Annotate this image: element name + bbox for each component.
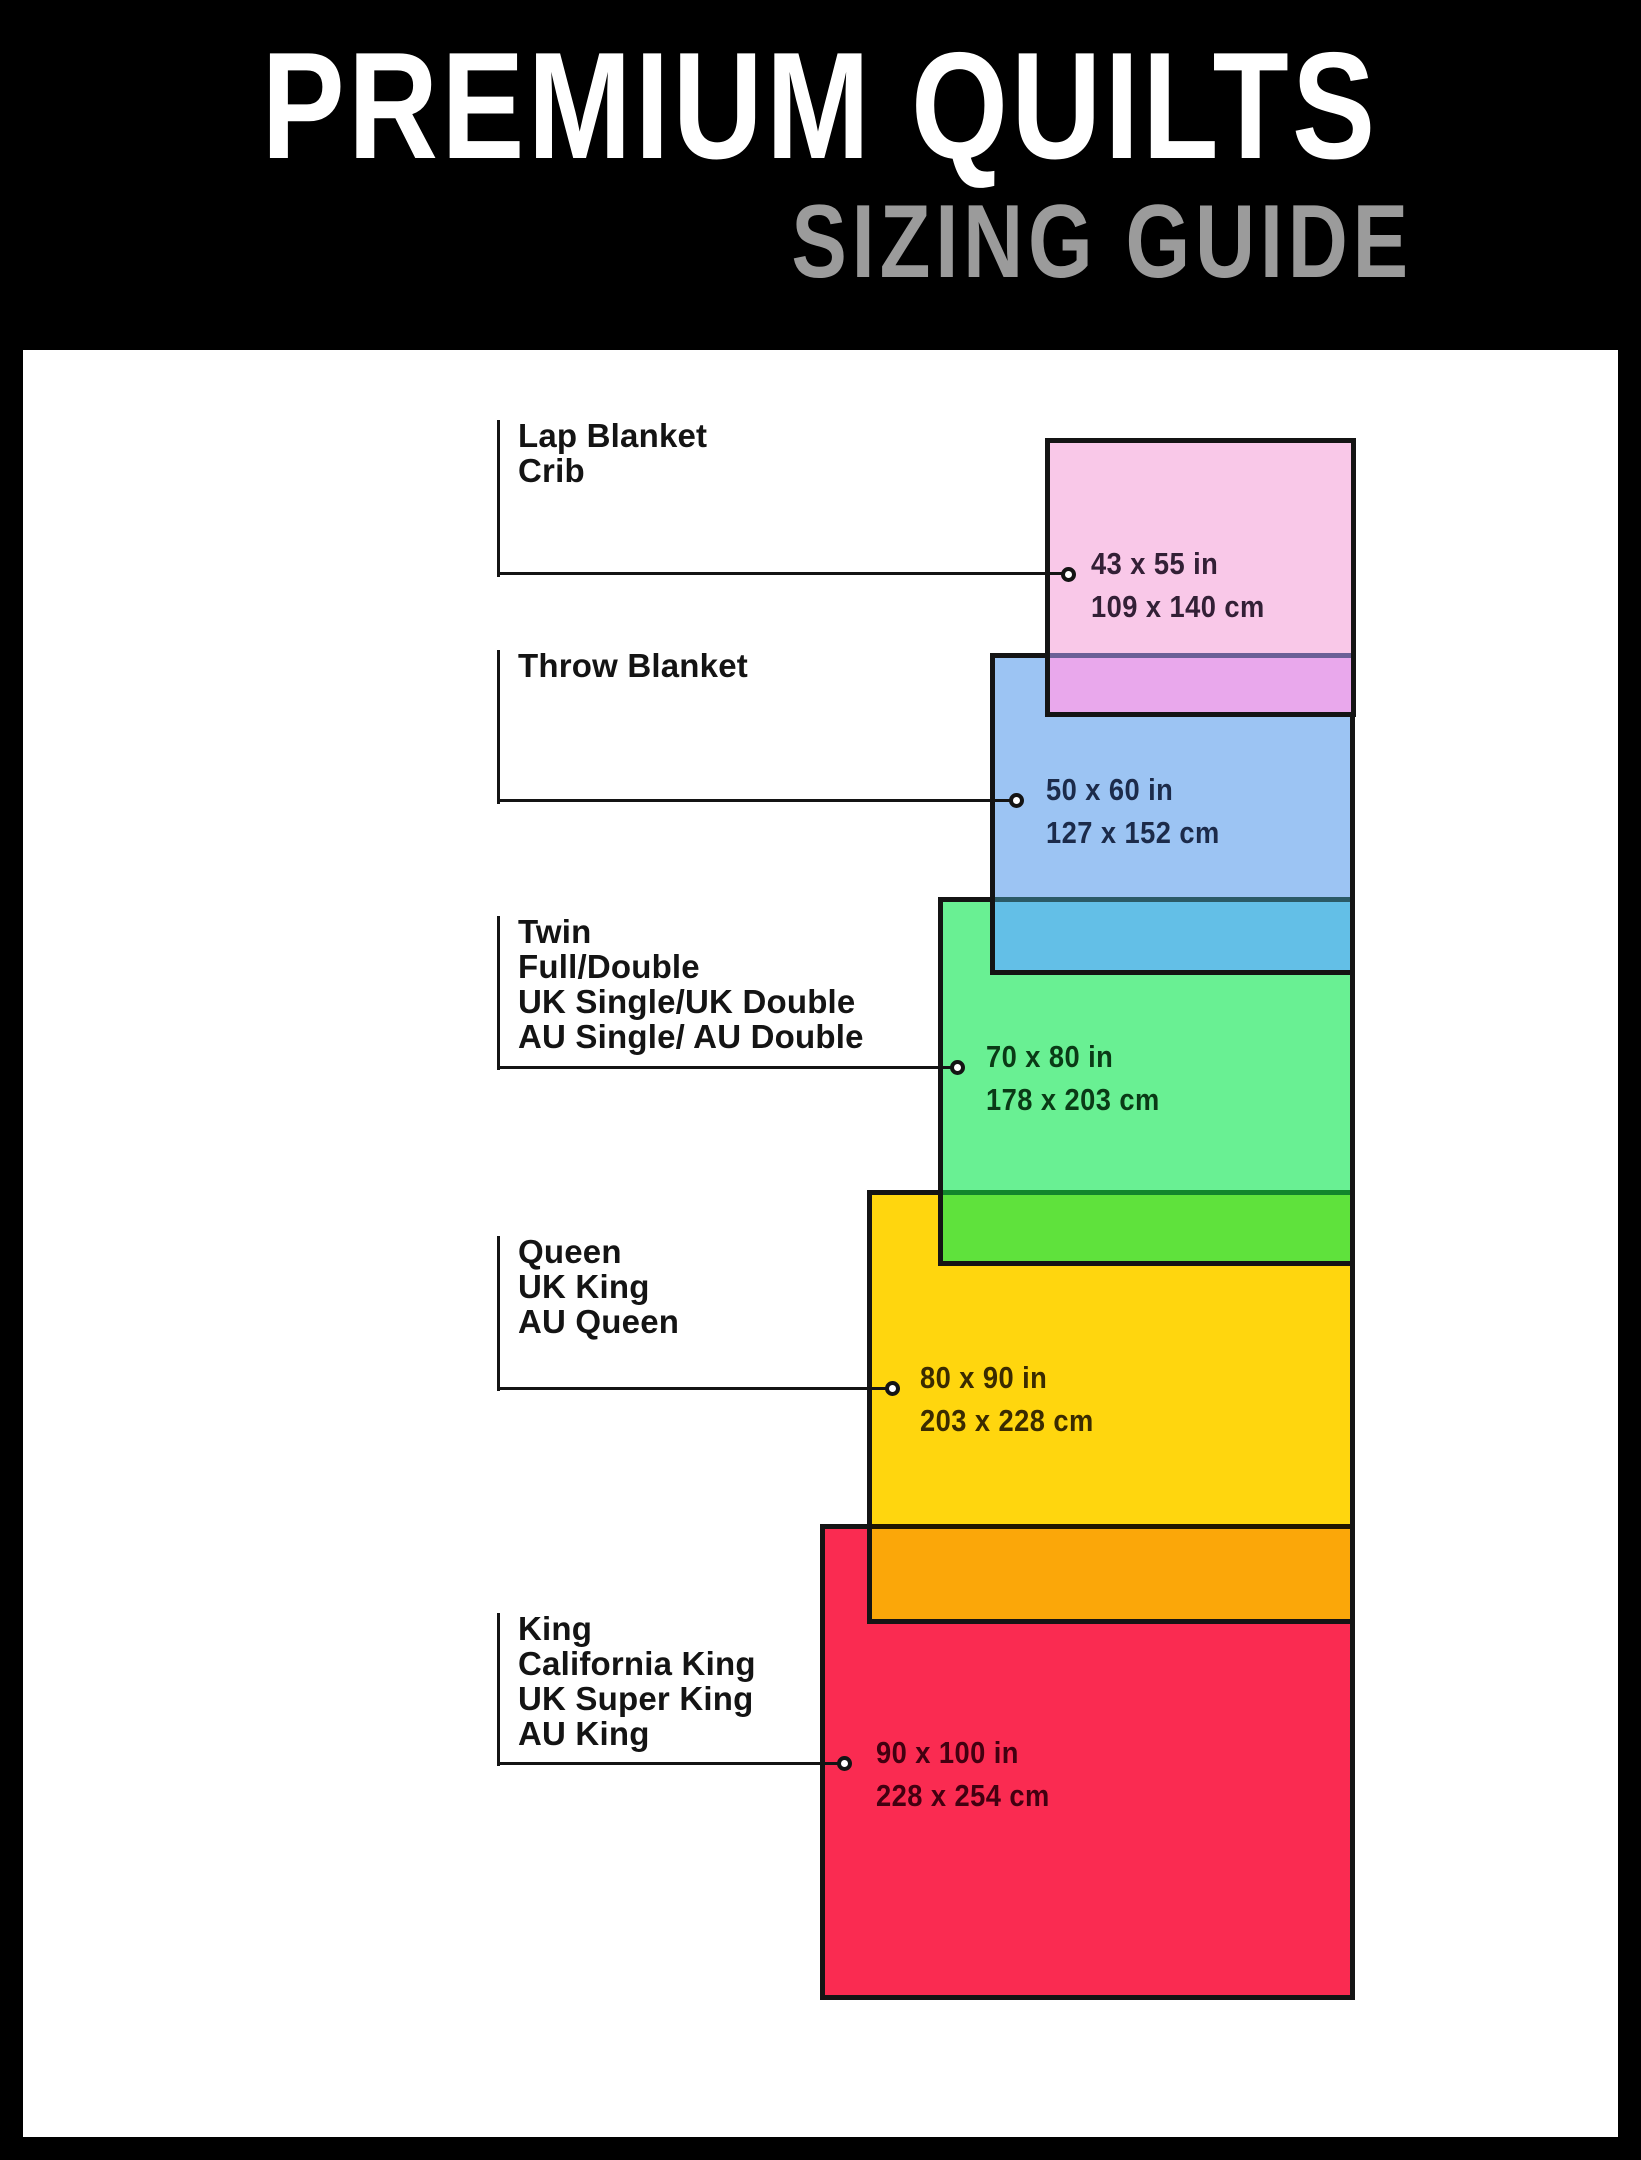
dimension-inches: 50 x 60 in xyxy=(1046,768,1220,811)
king-labels: King California King UK Super King AU Ki… xyxy=(518,1611,756,1751)
page-title: PREMIUM QUILTS xyxy=(262,30,1379,182)
dimension-inches: 43 x 55 in xyxy=(1091,542,1265,585)
label-tick-line xyxy=(497,916,500,1070)
queen-over-king-overlap xyxy=(872,1524,1350,1619)
label-tick-line xyxy=(497,420,500,577)
queen-labels: Queen UK King AU Queen xyxy=(518,1234,679,1339)
label-tick-line xyxy=(497,1236,500,1391)
connector-dot xyxy=(837,1756,852,1771)
dimension-cm: 228 x 254 cm xyxy=(876,1774,1050,1817)
connector-dot xyxy=(885,1381,900,1396)
size-label: UK Super King xyxy=(518,1681,756,1716)
dimension-inches: 70 x 80 in xyxy=(986,1035,1160,1078)
connector-dot xyxy=(1009,793,1024,808)
header: PREMIUM QUILTS xyxy=(0,30,1641,182)
dimension-cm: 203 x 228 cm xyxy=(920,1399,1094,1442)
dimension-cm: 109 x 140 cm xyxy=(1091,585,1265,628)
size-label: AU King xyxy=(518,1716,756,1751)
dimension-inches: 80 x 90 in xyxy=(920,1356,1094,1399)
size-label: King xyxy=(518,1611,756,1646)
king-dimensions: 90 x 100 in 228 x 254 cm xyxy=(876,1731,1050,1817)
size-label: Throw Blanket xyxy=(518,648,748,683)
size-label: Queen xyxy=(518,1234,679,1269)
page-subtitle: SIZING GUIDE xyxy=(791,192,1413,292)
connector-line xyxy=(497,1066,958,1069)
twin-full-dimensions: 70 x 80 in 178 x 203 cm xyxy=(986,1035,1160,1121)
size-label: Full/Double xyxy=(518,949,864,984)
twin-full-labels: Twin Full/Double UK Single/UK Double AU … xyxy=(518,914,864,1054)
subheader: SIZING GUIDE xyxy=(636,192,1413,292)
lap-blanket-dimensions: 43 x 55 in 109 x 140 cm xyxy=(1091,542,1265,628)
connector-dot xyxy=(1061,567,1076,582)
twin-over-queen-overlap xyxy=(943,1190,1350,1261)
throw-over-twin-overlap xyxy=(995,897,1350,970)
connector-line xyxy=(497,799,1017,802)
queen-dimensions: 80 x 90 in 203 x 228 cm xyxy=(920,1356,1094,1442)
lap-over-throw-overlap xyxy=(1050,653,1351,712)
size-label: AU Single/ AU Double xyxy=(518,1019,864,1054)
label-tick-line xyxy=(497,1613,500,1766)
connector-dot xyxy=(950,1060,965,1075)
dimension-inches: 90 x 100 in xyxy=(876,1731,1050,1774)
label-tick-line xyxy=(497,650,500,804)
dimension-cm: 178 x 203 cm xyxy=(986,1078,1160,1121)
throw-blanket-labels: Throw Blanket xyxy=(518,648,748,683)
connector-line xyxy=(497,1387,893,1390)
size-label: California King xyxy=(518,1646,756,1681)
size-label: AU Queen xyxy=(518,1304,679,1339)
size-label: UK Single/UK Double xyxy=(518,984,864,1019)
connector-line xyxy=(497,572,1069,575)
size-label: UK King xyxy=(518,1269,679,1304)
size-label: Twin xyxy=(518,914,864,949)
throw-blanket-dimensions: 50 x 60 in 127 x 152 cm xyxy=(1046,768,1220,854)
infographic-page: PREMIUM QUILTS SIZING GUIDE Lap Blanket … xyxy=(0,0,1641,2160)
dimension-cm: 127 x 152 cm xyxy=(1046,811,1220,854)
size-label: Crib xyxy=(518,453,707,488)
connector-line xyxy=(497,1762,845,1765)
size-label: Lap Blanket xyxy=(518,418,707,453)
lap-blanket-labels: Lap Blanket Crib xyxy=(518,418,707,488)
